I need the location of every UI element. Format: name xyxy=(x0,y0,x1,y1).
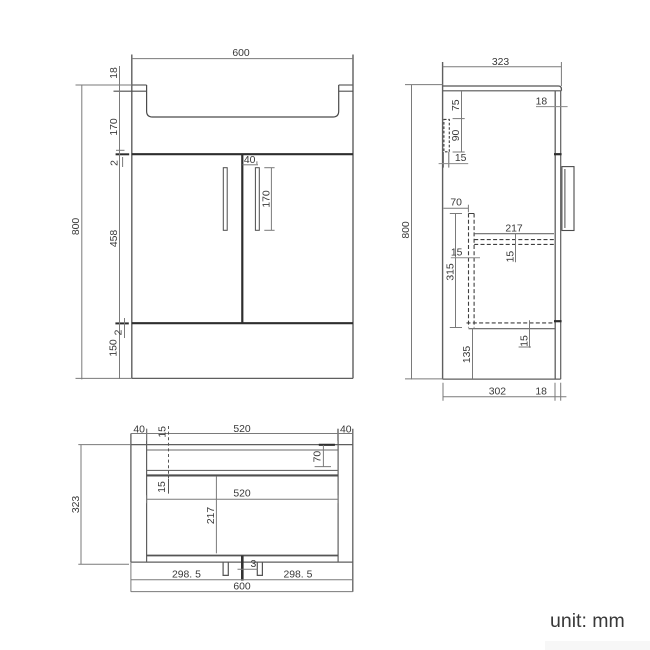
svg-text:15: 15 xyxy=(451,247,463,258)
svg-text:302: 302 xyxy=(489,386,507,397)
svg-text:170: 170 xyxy=(109,118,120,136)
svg-text:70: 70 xyxy=(313,451,324,463)
svg-text:40: 40 xyxy=(133,424,145,435)
svg-text:800: 800 xyxy=(71,218,82,236)
svg-text:135: 135 xyxy=(462,346,473,364)
svg-text:600: 600 xyxy=(233,581,251,592)
svg-text:15: 15 xyxy=(520,335,531,347)
svg-text:3: 3 xyxy=(251,559,257,570)
svg-text:298. 5: 298. 5 xyxy=(172,569,201,580)
svg-text:unit: mm: unit: mm xyxy=(550,610,625,632)
svg-text:15: 15 xyxy=(157,481,168,493)
svg-text:217: 217 xyxy=(505,223,523,234)
svg-text:70: 70 xyxy=(450,198,462,209)
svg-text:2: 2 xyxy=(114,329,125,335)
svg-text:40: 40 xyxy=(340,424,352,435)
svg-text:323: 323 xyxy=(492,57,510,68)
svg-text:18: 18 xyxy=(535,386,547,397)
svg-text:90: 90 xyxy=(451,130,462,142)
svg-text:520: 520 xyxy=(233,424,251,435)
svg-text:150: 150 xyxy=(109,339,120,357)
svg-text:15: 15 xyxy=(455,153,467,164)
svg-text:800: 800 xyxy=(401,221,412,239)
svg-text:315: 315 xyxy=(446,263,457,281)
svg-text:600: 600 xyxy=(232,48,250,59)
svg-text:15: 15 xyxy=(506,251,517,263)
svg-text:18: 18 xyxy=(536,97,548,108)
svg-text:170: 170 xyxy=(261,190,272,208)
svg-text:18: 18 xyxy=(109,67,120,79)
svg-text:217: 217 xyxy=(206,507,217,525)
svg-text:2: 2 xyxy=(110,160,121,166)
svg-text:323: 323 xyxy=(71,496,82,514)
svg-text:15: 15 xyxy=(158,426,169,438)
svg-text:298. 5: 298. 5 xyxy=(283,569,312,580)
svg-text:520: 520 xyxy=(233,489,251,500)
svg-text:458: 458 xyxy=(109,230,120,248)
svg-text:75: 75 xyxy=(451,99,462,111)
